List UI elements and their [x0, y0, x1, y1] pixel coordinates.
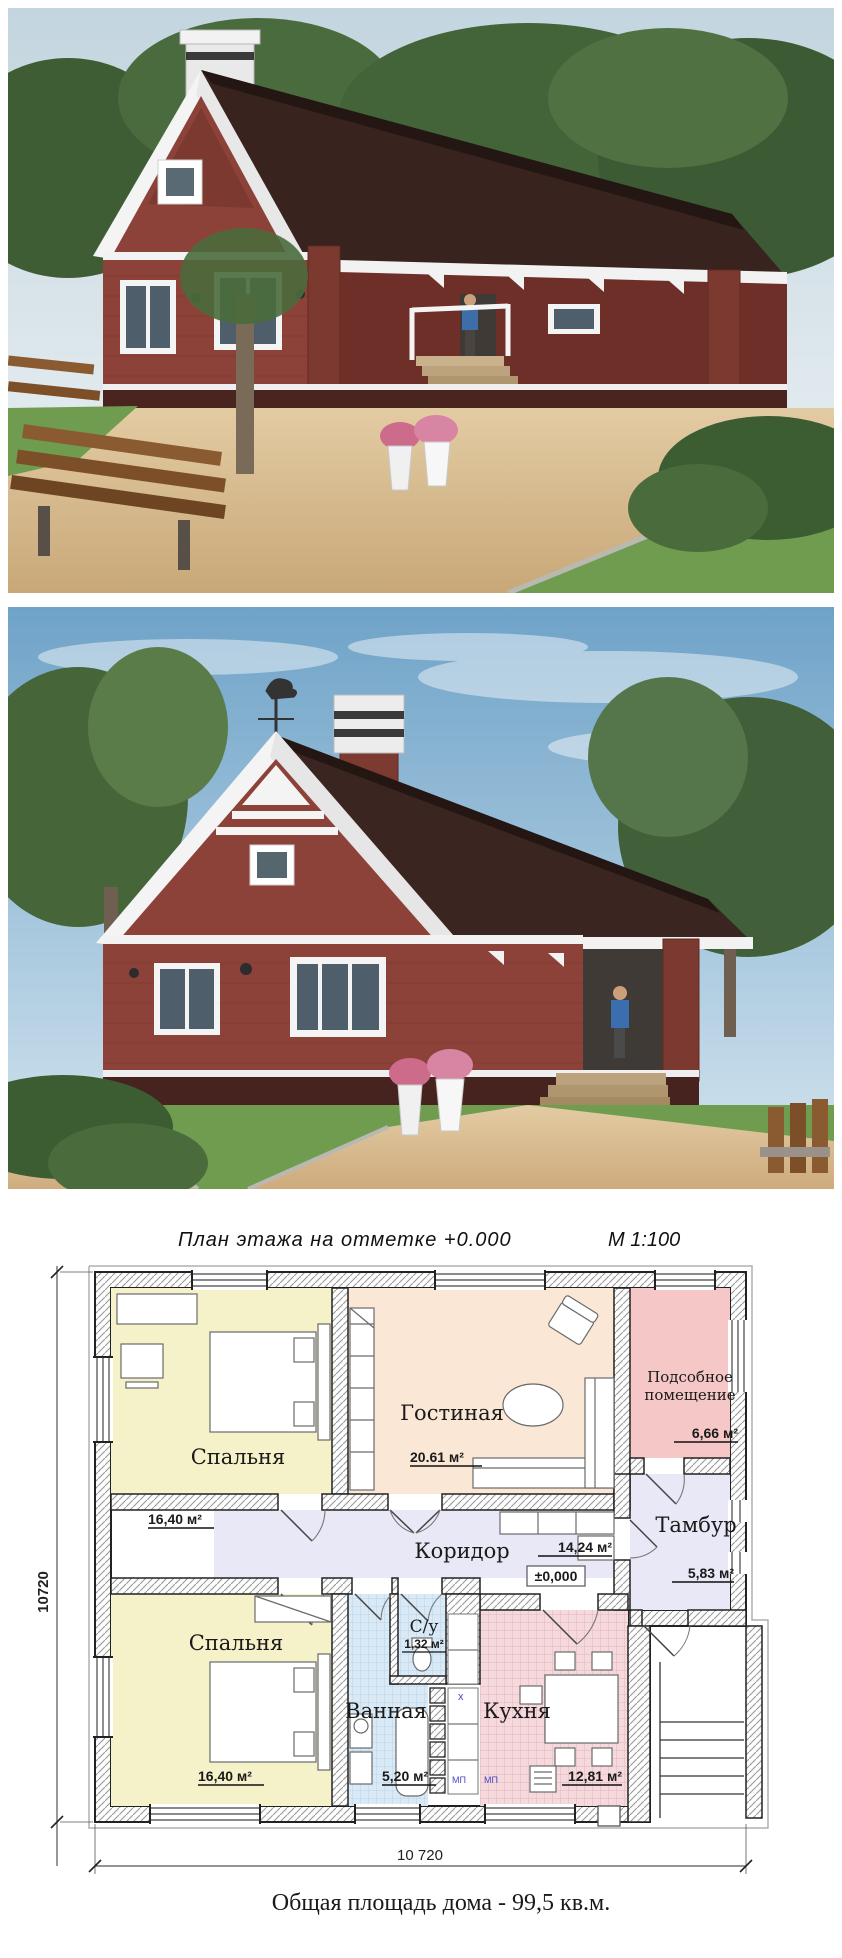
bathroom-label: Ванная: [345, 1699, 427, 1723]
tambur-label: Тамбур: [655, 1513, 736, 1537]
wc-area: 1,32 м²: [404, 1637, 444, 1651]
bottom-dimension: 10 720: [397, 1847, 443, 1864]
utility-label-1: Подсобное: [647, 1368, 733, 1386]
tambur-area: 5,83 м²: [688, 1565, 734, 1581]
kitchen-label: Кухня: [483, 1699, 551, 1723]
bathroom-area: 5,20 м²: [382, 1768, 428, 1784]
wall-lantern: [240, 963, 252, 975]
corridor-area: 14,24 м²: [558, 1539, 612, 1555]
bedroom1-label: Спальня: [191, 1445, 286, 1469]
bedroom1-area: 16,40 м²: [148, 1511, 202, 1527]
kitchen-area: 12,81 м²: [568, 1768, 622, 1784]
total-area-caption: Общая площадь дома - 99,5 кв.м.: [0, 1890, 842, 1917]
bedroom2-area: 16,40 м²: [198, 1768, 252, 1784]
wall-lantern: [129, 968, 139, 978]
corridor-label: Коридор: [414, 1539, 509, 1563]
left-dimension: 10720: [35, 1571, 52, 1613]
sink-x-mark: х: [458, 1691, 464, 1703]
mp-mark-1: МП: [452, 1775, 466, 1785]
utility-area: 6,66 м²: [692, 1425, 738, 1441]
wc-label: С/у: [410, 1617, 439, 1637]
bench: [760, 1099, 830, 1173]
utility-label-2: помещение: [644, 1386, 735, 1404]
house-render-photo-2: [8, 607, 834, 1189]
page: План этажа на отметке +0.000 М 1:100: [0, 0, 842, 1958]
tambur-floor: [630, 1474, 730, 1610]
plan-title: План этажа на отметке +0.000: [178, 1229, 512, 1252]
level-mark: ±0,000: [535, 1568, 578, 1584]
house-render-2-illustration: [8, 607, 834, 1189]
living-area: 20.61 м²: [410, 1449, 464, 1465]
house-render-1-illustration: [8, 8, 834, 593]
floor-plan: Спальня 16,40 м² Гостиная 20.61 м² Подсо…: [0, 1262, 842, 1890]
mp-mark-2: МП: [484, 1775, 498, 1785]
bedroom2-label: Спальня: [189, 1631, 284, 1655]
living-label: Гостиная: [400, 1401, 504, 1425]
plan-scale: М 1:100: [608, 1229, 680, 1252]
house-render-photo-1: [8, 8, 834, 593]
plan-title-row: План этажа на отметке +0.000 М 1:100: [0, 1229, 842, 1257]
